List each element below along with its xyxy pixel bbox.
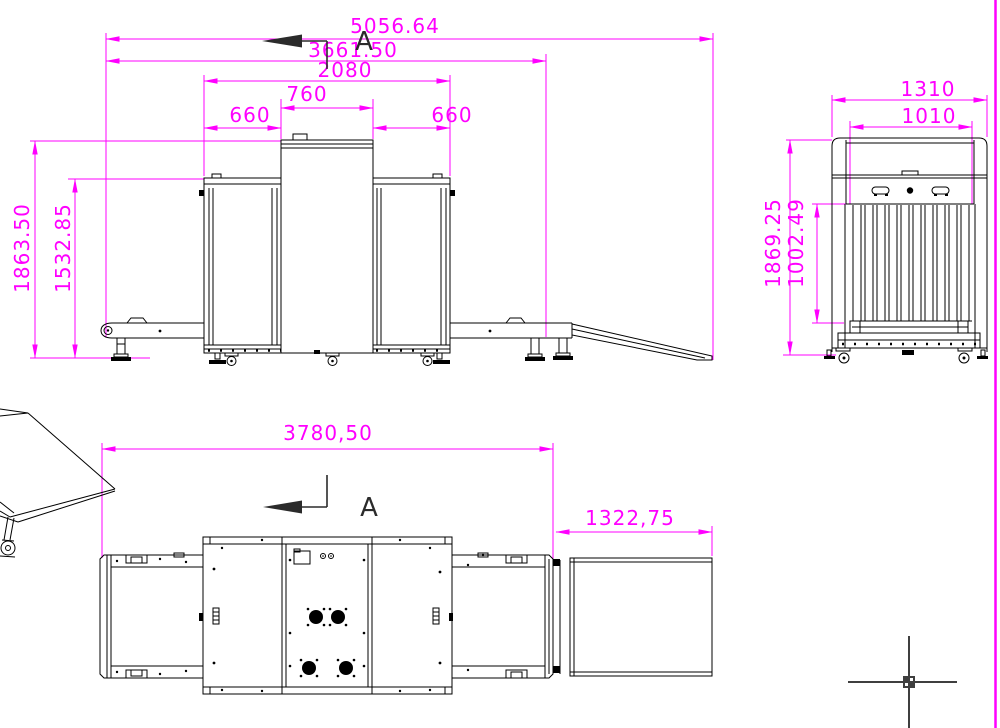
end-view: 1310 1010 1869.25 1002.49 — [761, 77, 988, 363]
conveyor-right-plan — [449, 553, 553, 678]
dim-plan-ramp-length: 1322,75 — [585, 506, 675, 530]
crosshair-marker — [848, 636, 957, 728]
plan-machine — [100, 537, 712, 694]
belt-and-base — [838, 321, 980, 355]
section-arrow-icon — [262, 35, 302, 48]
isometric-ramp-fragment — [0, 409, 115, 557]
front-dimension-lines — [35, 39, 713, 358]
fan-grille — [307, 608, 326, 627]
conveyor-right — [450, 318, 573, 361]
fan-grille — [329, 608, 348, 627]
conveyor-left-plan — [100, 553, 203, 678]
conveyor-left — [101, 318, 204, 361]
front-view: 5056.64 3661.50 2080 760 660 660 1863.50… — [10, 14, 713, 366]
control-band — [846, 178, 974, 204]
dim-front-overall-height: 1863.50 — [10, 203, 34, 293]
display-box — [294, 551, 310, 564]
dim-front-left-section: 660 — [229, 103, 270, 127]
plan-extension-lines — [102, 443, 712, 560]
dim-front-cabinet-length: 2080 — [318, 58, 373, 82]
plan-view: 3780,50 1322,75 A — [100, 421, 712, 694]
dim-end-overall-height: 1869.25 — [761, 198, 785, 288]
cabinet-plan — [203, 537, 452, 694]
dim-end-overall-width: 1310 — [901, 77, 956, 101]
tunnel-curtains — [850, 205, 972, 321]
dim-front-tunnel-width: 760 — [286, 82, 327, 106]
section-label-top: A — [355, 27, 373, 57]
dim-end-tunnel-width: 1010 — [902, 104, 957, 128]
section-label-bottom: A — [360, 493, 378, 523]
top-cap — [832, 138, 987, 178]
dim-end-belt-height: 1002.49 — [784, 198, 808, 288]
section-arrow-a-bottom: A — [263, 475, 378, 523]
front-machine — [101, 134, 712, 366]
end-machine — [824, 138, 988, 363]
center-section-detail — [289, 549, 366, 677]
fan-grille — [337, 659, 356, 678]
side-vents — [213, 539, 442, 692]
dim-front-cabinet-height: 1532.85 — [51, 203, 75, 293]
dim-plan-body-length: 3780,50 — [283, 421, 373, 445]
section-arrow-icon — [263, 501, 302, 514]
dim-front-right-section: 660 — [431, 103, 472, 127]
column-top-notch — [293, 134, 307, 140]
fan-grille — [300, 659, 319, 678]
keyswitch-dot — [907, 187, 913, 193]
casters-and-feet — [209, 353, 450, 366]
ramp-plan — [553, 558, 712, 676]
cad-drawing-canvas: 5056.64 3661.50 2080 760 660 660 1863.50… — [0, 0, 1000, 728]
tunnel-column — [281, 140, 373, 353]
cad-drawing: 5056.64 3661.50 2080 760 660 660 1863.50… — [0, 0, 1000, 728]
ramp-side — [572, 324, 712, 360]
